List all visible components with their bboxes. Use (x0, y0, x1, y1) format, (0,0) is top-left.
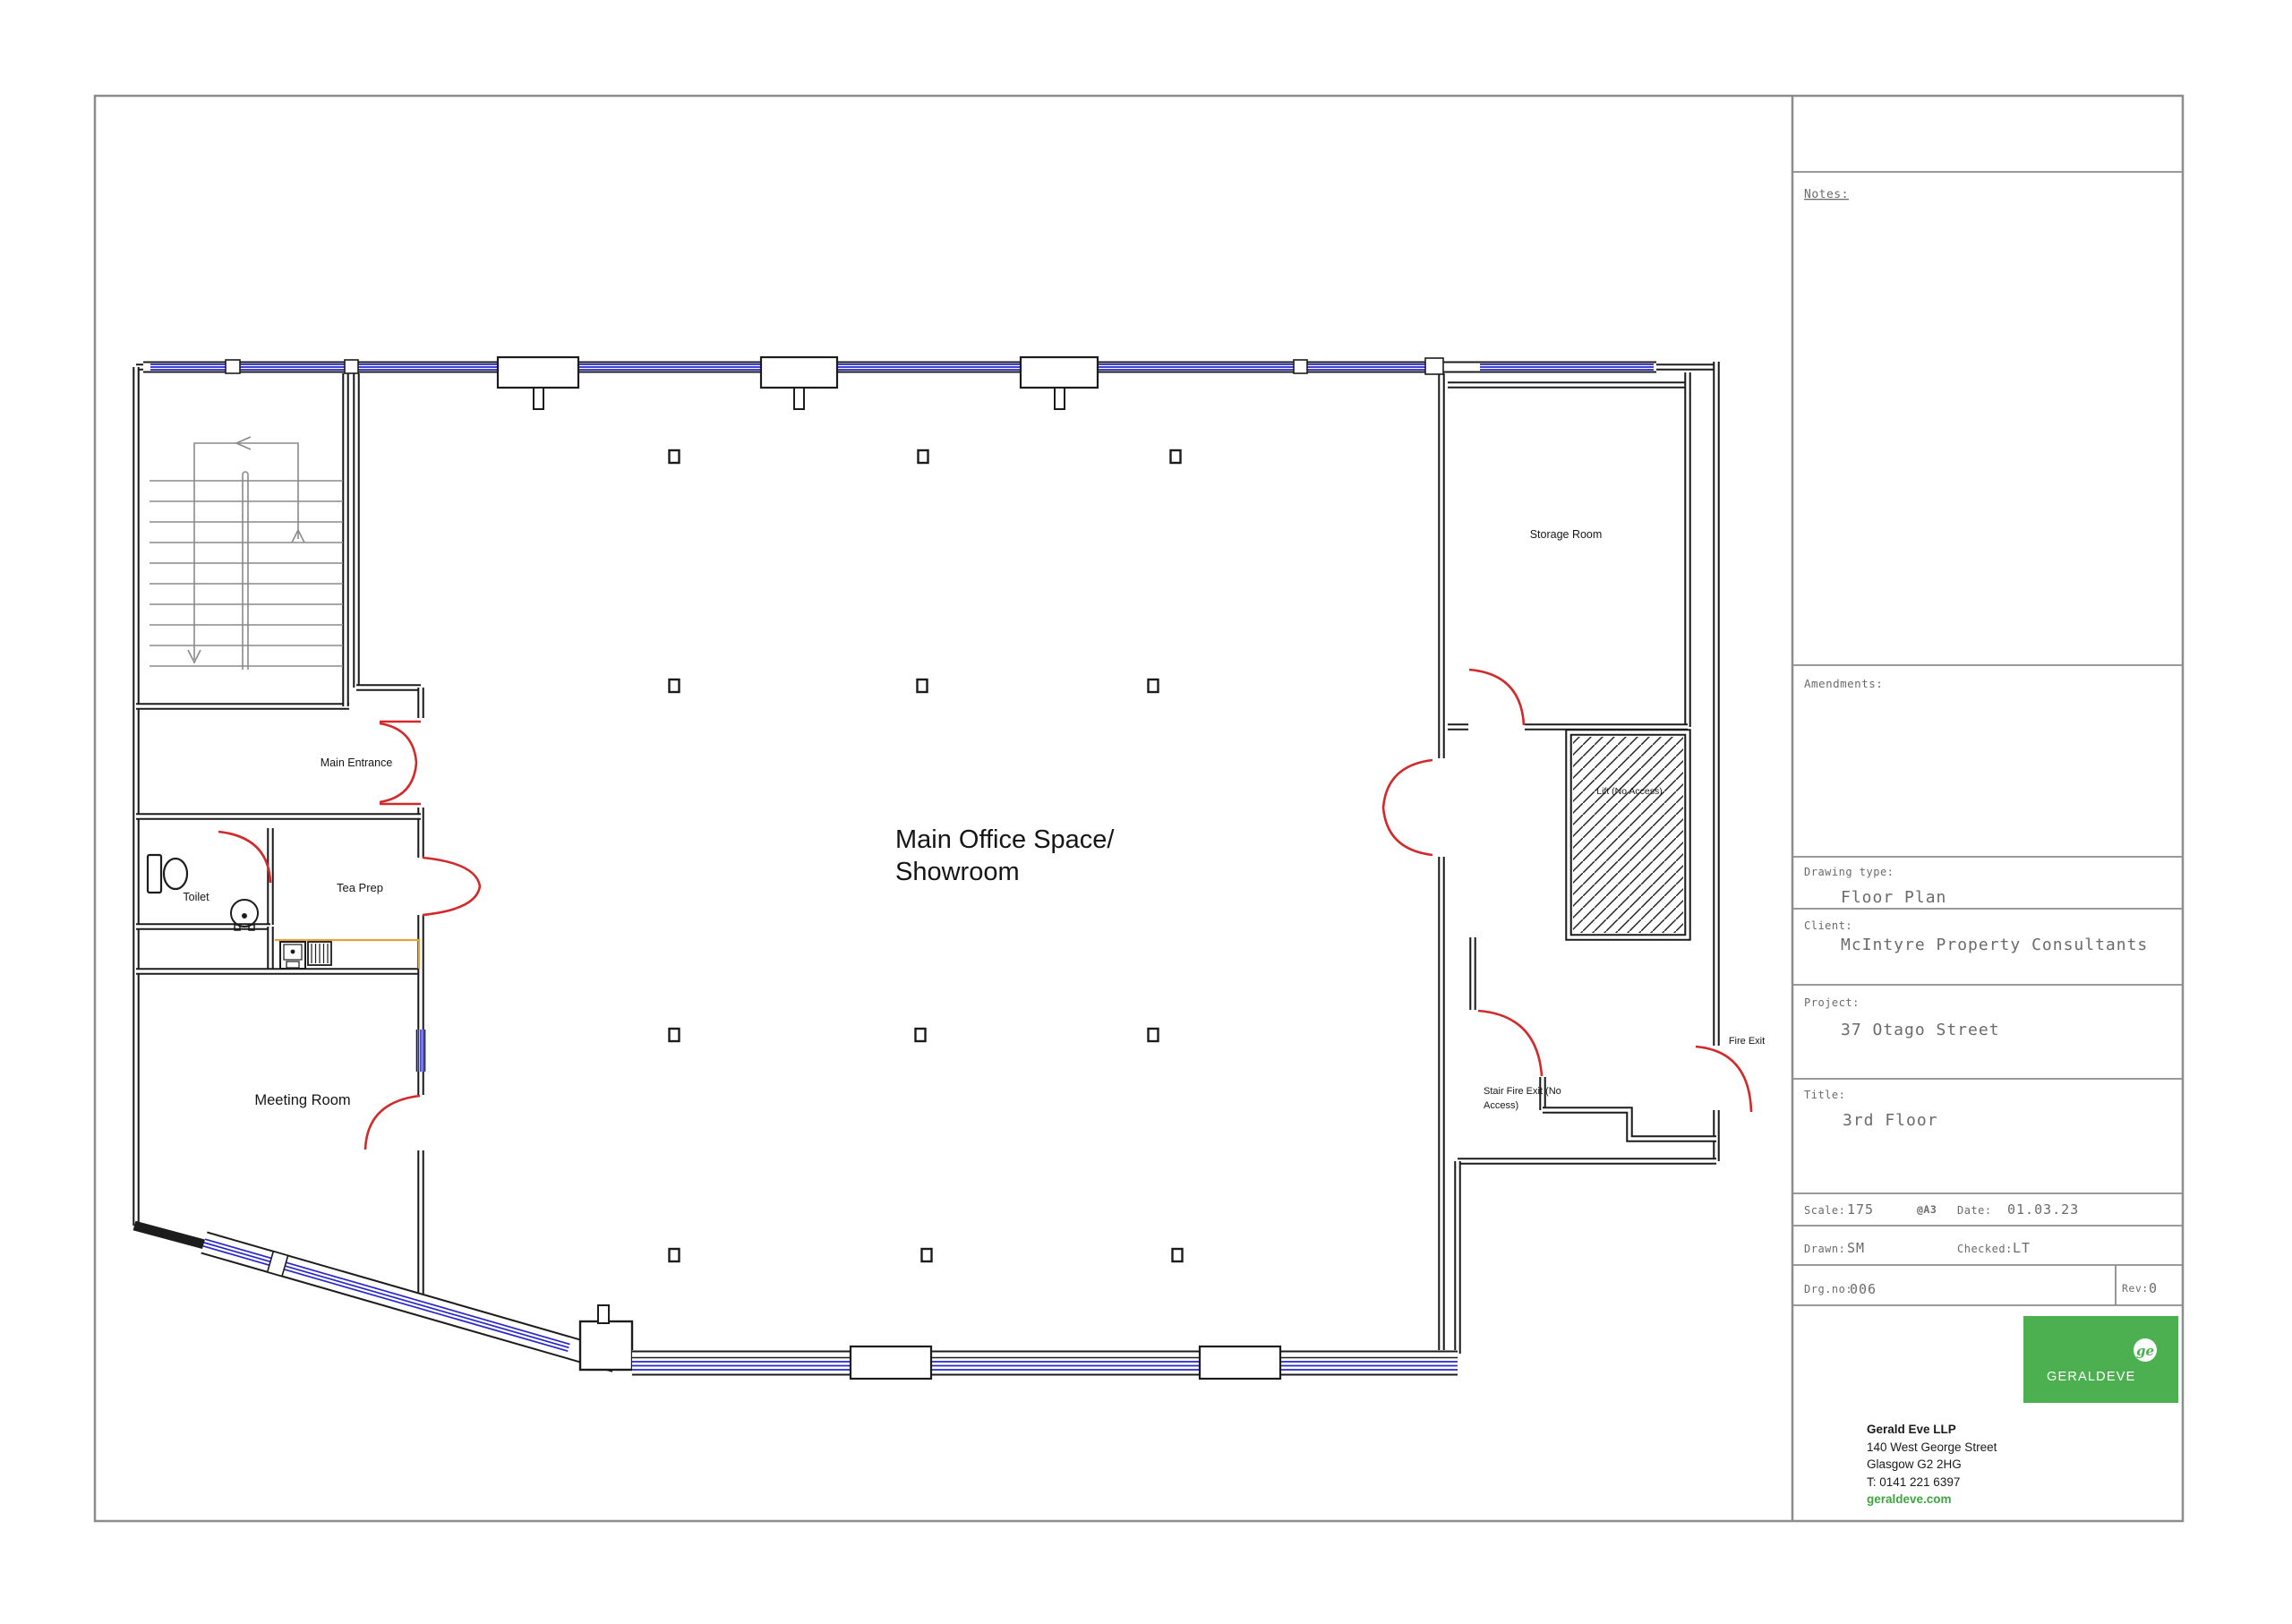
firm-address-line2: Glasgow G2 2HG (1867, 1457, 1962, 1471)
date-value: 01.03.23 (2007, 1201, 2079, 1218)
checked-value: LT (2013, 1240, 2031, 1256)
geraldeve-monogram: ge (2136, 1343, 2154, 1359)
rev-label: Rev: (2122, 1282, 2149, 1295)
staircase (150, 437, 343, 670)
toilet-door (218, 832, 270, 883)
project-label: Project: (1804, 996, 1860, 1009)
title-label: Title: (1804, 1089, 1845, 1101)
drawn-value: SM (1847, 1240, 1865, 1256)
title-block: Notes: Amendments: Drawing type: Floor P… (1804, 188, 2178, 1506)
amendments-label: Amendments: (1804, 677, 1883, 690)
fire-exit-label: Fire Exit (1729, 1036, 1765, 1047)
geraldeve-logo-text: GERALDEVE (2047, 1370, 2135, 1384)
project-value: 37 Otago Street (1841, 1021, 2000, 1039)
storage-room-door (1469, 670, 1524, 725)
meeting-room-door (365, 1096, 420, 1150)
storage-room-label: Storage Room (1530, 528, 1603, 541)
stair-fire-exit-label-2: Access) (1484, 1100, 1518, 1111)
firm-address-line1: 140 West George Street (1867, 1440, 1997, 1454)
main-office-label: Main Office Space/ (895, 825, 1115, 854)
stair-fire-exit-label: Stair Fire Exit (No (1484, 1086, 1561, 1097)
doors (218, 670, 1751, 1150)
drg-no-value: 006 (1850, 1281, 1877, 1297)
main-entrance-label: Main Entrance (321, 756, 393, 769)
paper-size: @A3 (1917, 1203, 1937, 1216)
firm-phone: T: 0141 221 6397 (1867, 1475, 1960, 1489)
main-office-label-2: Showroom (895, 858, 1020, 886)
drg-no-label: Drg.no: (1804, 1283, 1852, 1295)
checked-label: Checked: (1957, 1243, 2013, 1255)
rev-value: 0 (2149, 1280, 2158, 1296)
office-double-door (1383, 760, 1432, 855)
drawing-type-value: Floor Plan (1841, 888, 1946, 907)
firm-website-link[interactable]: geraldeve.com (1867, 1492, 1952, 1506)
date-label: Date: (1957, 1204, 1992, 1217)
tea-prep-label: Tea Prep (337, 881, 383, 894)
drawing-type-label: Drawing type: (1804, 866, 1894, 878)
toilet-label: Toilet (183, 891, 210, 903)
floor-plan-drawing: Main Office Space/ Showroom Meeting Room… (0, 0, 2292, 1620)
fire-exit-door (1696, 1047, 1751, 1112)
scale-value: 175 (1847, 1201, 1874, 1218)
scale-label: Scale: (1804, 1204, 1845, 1217)
tea-prep-counter (275, 940, 419, 969)
firm-name: Gerald Eve LLP (1867, 1423, 1956, 1436)
lift-label: Lift (No Access) (1596, 786, 1663, 797)
stair-fire-exit-door (1478, 1011, 1542, 1076)
tea-prep-double-door (423, 858, 480, 915)
client-value: McIntyre Property Consultants (1841, 936, 2148, 954)
client-label: Client: (1804, 919, 1852, 932)
title-value: 3rd Floor (1843, 1111, 1938, 1130)
meeting-room-label: Meeting Room (254, 1092, 350, 1108)
geraldeve-logo: GERALDEVE ge (2023, 1316, 2178, 1403)
lift-hatch (1573, 737, 1683, 933)
notes-label: Notes: (1804, 188, 1849, 201)
firm-address: Gerald Eve LLP 140 West George Street Gl… (1867, 1423, 1997, 1506)
drawn-label: Drawn: (1804, 1243, 1845, 1255)
columns (670, 450, 1183, 1261)
